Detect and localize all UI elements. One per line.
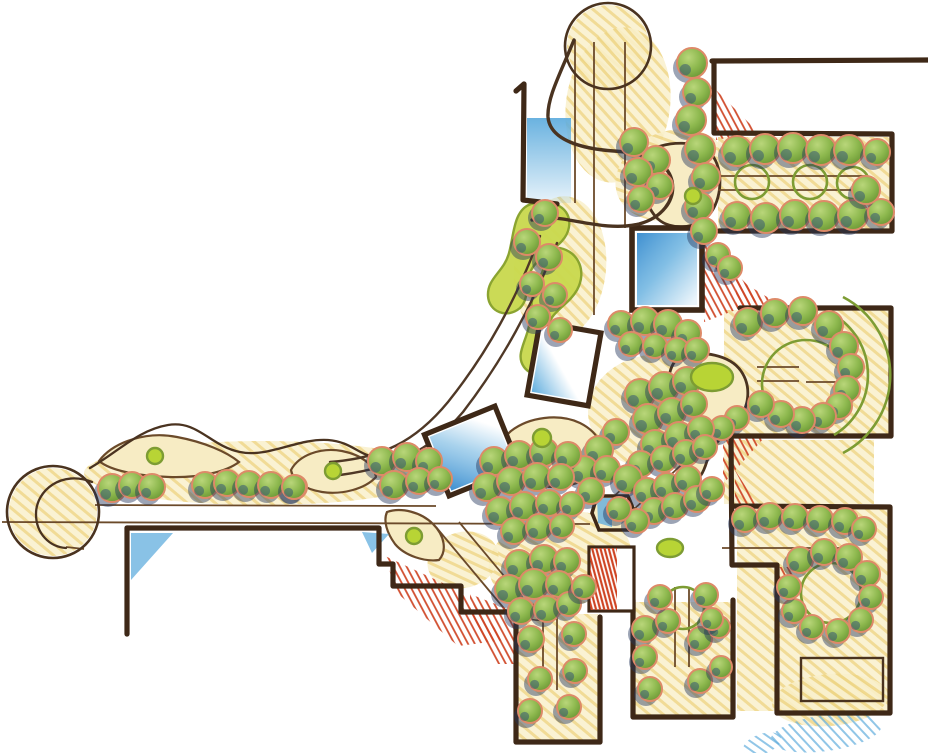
tree-clump-shade [695, 448, 704, 457]
tree-clump-shade [685, 93, 696, 104]
tree-clump-shade [525, 478, 536, 489]
tree-clump-shade [725, 217, 736, 228]
tree-clump-shade [616, 480, 627, 491]
tree-clump-shade [656, 487, 666, 497]
tree-clump-shade [708, 256, 717, 265]
tree-clump-shade [100, 489, 111, 500]
tree-clump-shade [703, 620, 711, 628]
tree-clump-shade [664, 507, 674, 517]
tree-clump-shade [550, 331, 559, 340]
tree-clump-shade [809, 520, 819, 530]
reflecting-pool-water [637, 233, 697, 305]
tree-clump-shade [667, 351, 676, 360]
shrub [325, 463, 341, 479]
tree-clump-shade [802, 628, 811, 637]
tree-clump-shade [750, 405, 760, 415]
tree-clump-shade [510, 612, 520, 622]
tree-clump-shade [690, 682, 699, 691]
tree-clump-shade [512, 507, 523, 518]
tree-clump-shade [687, 207, 698, 218]
tree-clump-shade [596, 470, 606, 480]
tree-clump-shade [789, 561, 799, 571]
tree-clump-shade [635, 658, 644, 667]
tree-clump-shade [660, 413, 671, 424]
tree-clump-shade [622, 143, 633, 154]
shrub [657, 539, 683, 557]
tree-clump-shade [679, 121, 690, 132]
tree-clump-shade [725, 152, 736, 163]
tree-clump-shade [693, 232, 703, 242]
tree-clump-shade [636, 420, 647, 431]
tree-clump-shade [686, 500, 696, 510]
tree-clump-shade [534, 214, 544, 224]
tree-clump-shade [828, 632, 837, 641]
tree-clump-shade [736, 323, 747, 334]
tree-clump-shade [475, 488, 486, 499]
tree-clump-shade [630, 200, 640, 210]
tree-clump-shade [141, 488, 151, 498]
tree-clump-shade [634, 630, 644, 640]
tree-clump-shade [194, 486, 204, 496]
tree-clump-shade [779, 588, 788, 597]
tree-clump-shade [633, 322, 644, 333]
tree-clump-shade [559, 708, 568, 717]
tree-clump-shade [781, 149, 792, 160]
tree-clump-shade [522, 285, 531, 294]
tree-clump-shade [627, 522, 636, 531]
tree-clump-shade [652, 388, 663, 399]
water-patch [131, 533, 173, 580]
tree-clump-shade [536, 610, 546, 620]
tree-clump-shade [834, 522, 844, 532]
tree-clump-shade [817, 326, 828, 337]
tree-clump-shade [550, 478, 560, 488]
tree-clump-shade [430, 480, 439, 489]
tree-clump-shade [791, 421, 801, 431]
tree-clump-shade [503, 532, 513, 542]
shrub [406, 528, 422, 544]
tree-clump-shade [854, 191, 865, 202]
tree-clump-shade [621, 345, 630, 354]
tree-clump-shade [650, 598, 659, 607]
tree-clump-shade [812, 217, 823, 228]
tree-clump-shade [694, 178, 705, 189]
tree-clump-shade [545, 296, 554, 305]
tree-clump-shade [658, 622, 667, 631]
tree-clump-shade [784, 612, 793, 621]
tree-clump-shade [559, 605, 568, 614]
tree-clump-shade [238, 485, 248, 495]
tree-clump-shade [753, 150, 764, 161]
landscape-site-plan [0, 0, 928, 753]
tree-clump-shade [520, 640, 530, 650]
tree-clump-shade [260, 486, 270, 496]
tree-clump-shade [809, 151, 820, 162]
tree-clump-shade [791, 312, 802, 323]
tree-clump-shade [609, 510, 618, 519]
building-wall [712, 60, 928, 61]
tree-clump-shade [382, 486, 393, 497]
tree-clump-shade [683, 405, 693, 415]
tree-clump-shade [499, 482, 510, 493]
tree-clump-shade [552, 527, 561, 536]
tree-clump-shade [562, 505, 571, 514]
tree-clump-shade [628, 395, 639, 406]
road-line [95, 505, 436, 506]
tree-clump-shade [488, 512, 499, 523]
tree-clump-shade [870, 213, 880, 223]
tree-clump-shade [856, 575, 866, 585]
tree-clump-shade [538, 504, 548, 514]
tree-clump-shade [626, 173, 637, 184]
tree-clump-shade [702, 490, 711, 499]
tree-clump-shade [696, 596, 705, 605]
tree-clump-shade [370, 462, 381, 473]
tree-clump-shade [720, 269, 729, 278]
tree-clump-shade [538, 258, 548, 268]
tree-clump-shade [687, 351, 696, 360]
tree-clump-shade [482, 462, 493, 473]
tree-clump-shade [783, 216, 794, 227]
tree [673, 48, 707, 83]
tree-clump-shade [284, 488, 293, 497]
tree-clump-shade [640, 690, 649, 699]
tree-clump-shade [653, 460, 663, 470]
tree-clump-shade [837, 151, 848, 162]
tree-clump-shade [522, 585, 533, 596]
tree-clump-shade [408, 482, 418, 492]
shrub [147, 448, 163, 464]
tree-clump-shade [507, 456, 518, 467]
tree-clump-shade [530, 680, 539, 689]
tree-clump-shade [851, 621, 860, 630]
tree-clump-shade [690, 640, 699, 649]
tree-clump-shade [770, 415, 780, 425]
shrub [691, 363, 733, 391]
shrub [685, 188, 701, 204]
tree-clump-shade [866, 153, 876, 163]
tree-clump-shade [216, 484, 226, 494]
tree-clump-shade [861, 598, 870, 607]
tree-clump-shade [813, 553, 823, 563]
tree-clump-shade [688, 150, 699, 161]
yellow-shade [9, 468, 97, 556]
tree-clump-shade [854, 530, 863, 539]
tree-clump-shade [395, 458, 406, 469]
tree-clump-shade [763, 314, 774, 325]
water-patch [362, 532, 389, 553]
tree-clump-shade [497, 590, 508, 601]
tree-clump-shade [574, 588, 583, 597]
tree-clump-shade [784, 518, 794, 528]
tree-clump-shade [759, 517, 769, 527]
tree-clump-shade [677, 480, 687, 490]
tree-clump-shade [528, 318, 537, 327]
tree-clump-shade [121, 486, 131, 496]
tree-clump-shade [680, 64, 691, 75]
tree-clump-shade [754, 219, 765, 230]
tree-clump-shade [565, 672, 574, 681]
tree-clump-shade [645, 347, 654, 356]
water-patch [527, 118, 571, 203]
tree-clump-shade [734, 520, 744, 530]
tree-clump-shade [520, 712, 529, 721]
tree-clump-shade [610, 325, 620, 335]
tree-clump-shade [636, 492, 646, 502]
tree-clump-shade [564, 635, 573, 644]
shrub [533, 429, 551, 447]
tree-clump-shade [675, 454, 685, 464]
site-plan-figure [0, 0, 928, 753]
leaf-bed [99, 435, 239, 477]
tree-clump-shade [528, 528, 538, 538]
tree-clump-shade [832, 347, 843, 358]
tree-clump-shade [675, 382, 686, 393]
tree-clump-shade [838, 558, 848, 568]
tree-clump-shade [841, 216, 852, 227]
tree-clump-shade [516, 243, 526, 253]
tree-clump-shade [712, 668, 720, 676]
tree-clump-shade [548, 585, 558, 595]
